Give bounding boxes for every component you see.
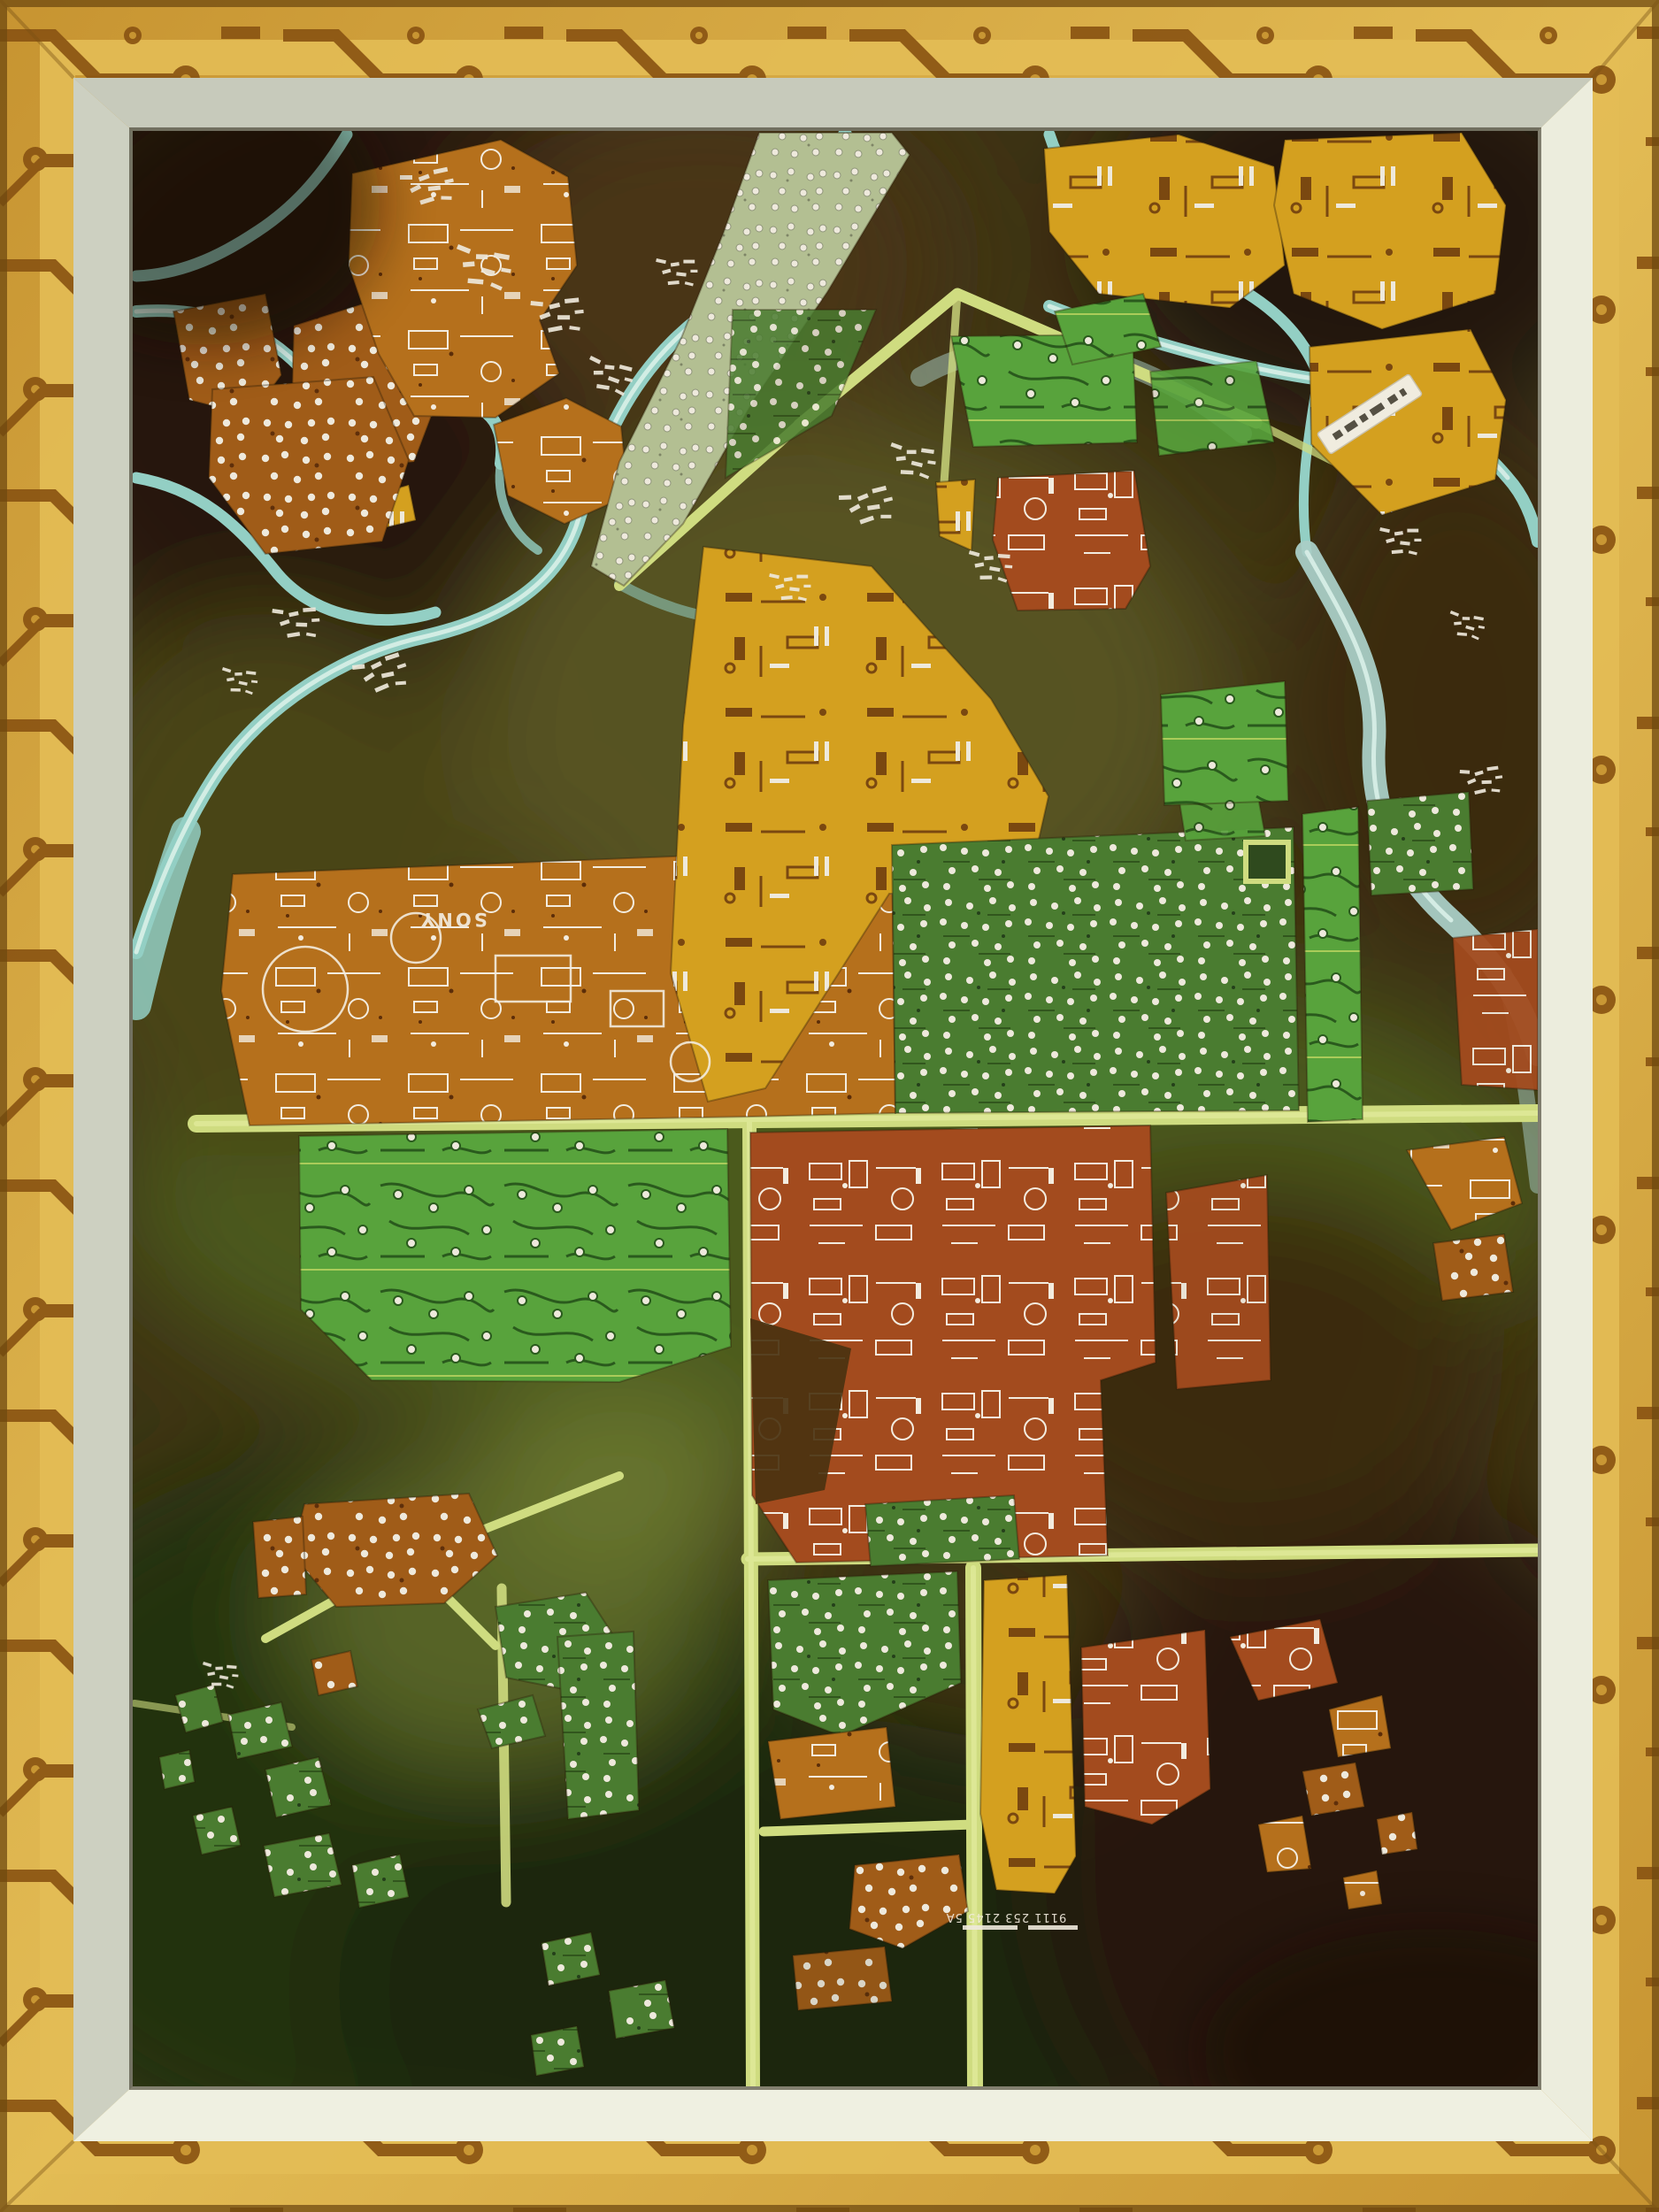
mat-top <box>73 78 1593 131</box>
painting: SONY 9111 253 2145 5A <box>0 27 1659 2212</box>
mat-right <box>1538 78 1593 2141</box>
pcb-red-bottomright <box>1081 1630 1210 1824</box>
pcb-copper-center <box>993 471 1150 611</box>
pcb-frag-bc-2 <box>793 1947 892 2010</box>
artwork-scene: SONY 9111 253 2145 5A <box>0 0 1659 2212</box>
pcb-green-traces-upper-right <box>1161 681 1288 805</box>
pcb-green-strip-bl <box>557 1632 639 1819</box>
pcb-green-dots-right <box>1367 792 1473 895</box>
pcb-gold-tall-board <box>980 1575 1076 1893</box>
pcb-small-blocks <box>253 1517 306 1598</box>
pcb-green-dots-large <box>892 827 1299 1113</box>
framed-artwork-photo: SONY 9111 253 2145 5A <box>0 0 1659 2212</box>
pcb-big-green-board <box>299 1129 731 1382</box>
pcb-copper-frag-bc <box>768 1727 895 1819</box>
pcb-copper-right-edge <box>1453 929 1538 1090</box>
pcb-gold-topright-2 <box>1274 133 1506 329</box>
board-code-marking: 9111 253 2145 5A <box>946 1910 1067 1924</box>
pcb-green-dots-bc-2 <box>865 1495 1019 1566</box>
pcb-green-top-2 <box>1150 361 1274 456</box>
mat-left <box>73 78 133 2141</box>
mat-bottom <box>73 2086 1593 2141</box>
pcb-green-traces-column <box>1302 807 1363 1122</box>
pcb-copper-frag-mid-right <box>1166 1175 1271 1389</box>
pcb-frag-right-2 <box>1433 1234 1513 1301</box>
green-square-plot <box>1246 842 1288 881</box>
sony-brand-marking: SONY <box>419 909 488 930</box>
